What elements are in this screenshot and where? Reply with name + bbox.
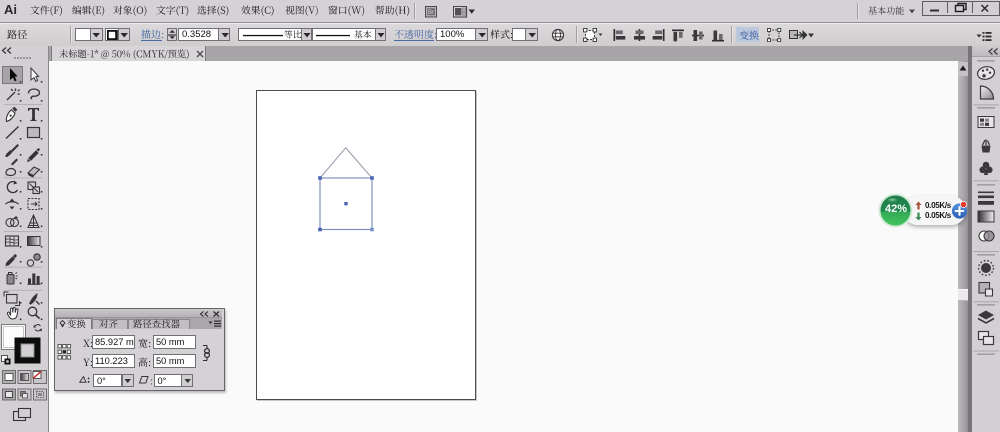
svg-text:Br: Br	[428, 10, 434, 16]
